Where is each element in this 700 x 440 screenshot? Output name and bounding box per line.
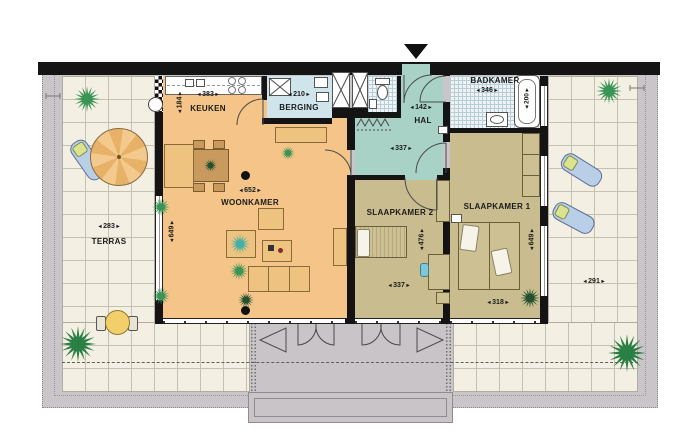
cooktop-burner-2 bbox=[238, 77, 246, 85]
dim-keuken-width: 383 bbox=[178, 91, 238, 98]
plant-terrace-right bbox=[596, 78, 622, 104]
kitchen-sink-left bbox=[185, 79, 194, 87]
wall-below-shafts bbox=[332, 108, 368, 118]
label-berging: BERGING bbox=[267, 103, 331, 112]
sofa bbox=[248, 266, 310, 292]
sideboard bbox=[275, 127, 327, 143]
wall-toilet-hal bbox=[368, 112, 401, 118]
window-right-badkamer bbox=[540, 86, 548, 126]
floorplan: KEUKEN BERGING HAL BADKAMER WOONKAMER SL… bbox=[0, 0, 700, 440]
terrace-round-table bbox=[105, 310, 130, 335]
dining-chair-1 bbox=[193, 140, 205, 149]
coffee-table-item-2 bbox=[278, 248, 283, 253]
wardrobe-shelf-1 bbox=[523, 154, 539, 155]
dining-chair-4 bbox=[213, 183, 225, 192]
wardrobe-shelf-2 bbox=[523, 175, 539, 176]
kitchen-sink-right bbox=[196, 79, 205, 87]
plant-woonkamer-4 bbox=[230, 262, 248, 280]
plant-terrace-left bbox=[74, 86, 100, 112]
balcony-step bbox=[248, 392, 453, 423]
glass-facade-slaapkamer2 bbox=[355, 318, 441, 324]
tv-cabinet-left bbox=[164, 144, 194, 188]
dim-woonkamer-depth: 649 bbox=[169, 212, 176, 252]
facade-corner-4 bbox=[540, 318, 548, 324]
gallery-edge-left bbox=[250, 322, 258, 392]
dim-slaapkamer2-width: 337 bbox=[375, 282, 423, 289]
plant-slaapkamer1 bbox=[520, 288, 540, 308]
wall-berging-woonkamer bbox=[262, 118, 332, 124]
facade-corner-2 bbox=[345, 318, 355, 324]
entrance-marker-icon bbox=[404, 44, 428, 59]
label-keuken: KEUKEN bbox=[178, 104, 238, 113]
label-slaapkamer1: SLAAPKAMER 1 bbox=[454, 202, 540, 211]
person-icon bbox=[230, 234, 250, 254]
room-hal-upper bbox=[397, 76, 443, 180]
shaft-box-2 bbox=[352, 72, 368, 108]
meter-box bbox=[438, 126, 448, 134]
dining-chair-3 bbox=[193, 183, 205, 192]
coffee-table-item-1 bbox=[268, 245, 274, 251]
dim-bathtub-length: 200 bbox=[524, 79, 531, 119]
sofa-seam-1 bbox=[268, 267, 269, 291]
window-right-slaapkamer1a bbox=[540, 156, 548, 206]
dim-hal-lower-width: 337 bbox=[378, 145, 424, 152]
label-hal: HAL bbox=[404, 116, 442, 125]
facade-corner-1 bbox=[155, 318, 163, 324]
dim-slaapkamer1-depth: 649 bbox=[529, 220, 536, 260]
bathroom-sink-bowl bbox=[490, 115, 504, 124]
wall-right-3 bbox=[540, 206, 548, 226]
glass-facade-slaapkamer1 bbox=[450, 318, 540, 324]
facade-corner-3 bbox=[441, 318, 450, 324]
toilet-tank-icon bbox=[375, 78, 390, 85]
label-slaapkamer2: SLAAPKAMER 2 bbox=[357, 208, 443, 217]
dim-slaapkamer2-depth: 476 bbox=[419, 220, 426, 260]
plant-woonkamer-3 bbox=[281, 146, 295, 160]
wall-hal-badkamer-mid bbox=[443, 102, 450, 142]
dim-hal-width: 142 bbox=[398, 104, 444, 111]
label-woonkamer: WOONKAMER bbox=[202, 198, 298, 207]
dim-keuken-depth: 184 bbox=[177, 83, 184, 123]
dim-terras-left: 283 bbox=[85, 223, 133, 230]
window-right-slaapkamer1b bbox=[540, 226, 548, 296]
desk-chair bbox=[420, 263, 429, 277]
double-bed-split bbox=[489, 223, 490, 289]
gallery-edge-right bbox=[445, 322, 453, 392]
dim-slaapkamer1-width: 318 bbox=[474, 299, 522, 306]
cooktop-burner-4 bbox=[238, 86, 246, 94]
wall-hal-slaapkamer2-left bbox=[347, 175, 405, 180]
armchair-1 bbox=[258, 208, 284, 230]
wall-left-upper bbox=[155, 112, 163, 196]
wall-right-1 bbox=[540, 76, 548, 86]
wardrobe-slaapkamer1 bbox=[522, 133, 540, 197]
toilet-basin-icon bbox=[369, 99, 377, 109]
bush-bottom-right bbox=[608, 334, 646, 372]
cooktop-burner-1 bbox=[228, 77, 236, 85]
plant-woonkamer-2 bbox=[152, 287, 170, 305]
berging-sink-icon bbox=[314, 77, 328, 88]
glass-facade-woonkamer bbox=[163, 318, 345, 324]
desk-slaapkamer2 bbox=[428, 254, 450, 290]
dining-chair-2 bbox=[213, 140, 225, 149]
table-plant-icon bbox=[204, 159, 217, 172]
plant-woonkamer-1 bbox=[152, 198, 170, 216]
boiler-icon bbox=[148, 97, 163, 112]
sofa-seam-2 bbox=[289, 267, 290, 291]
dim-badkamer-width: 346 bbox=[452, 87, 522, 94]
desk-right-wall bbox=[333, 228, 347, 266]
terrace-dashed-line bbox=[62, 362, 638, 363]
shelf-slaapkamer2 bbox=[436, 292, 450, 304]
balcony-gallery bbox=[250, 318, 453, 392]
label-terras: TERRAS bbox=[84, 237, 134, 246]
toilet-bowl-icon bbox=[377, 85, 388, 100]
column-1 bbox=[241, 171, 250, 180]
wall-right-4 bbox=[540, 296, 548, 318]
double-bed-pillow-1 bbox=[459, 224, 479, 252]
entrance-doorway bbox=[402, 64, 430, 76]
dim-berging-width: 210 bbox=[267, 91, 331, 98]
coffee-table bbox=[262, 240, 292, 262]
parasol bbox=[90, 128, 148, 186]
wall-woonkamer-hal-upper bbox=[347, 118, 355, 150]
single-bed-pillow bbox=[357, 229, 370, 257]
plant-woonkamer-5 bbox=[238, 292, 254, 308]
bush-bottom-left bbox=[60, 326, 96, 362]
dim-woonkamer-width: 652 bbox=[225, 187, 275, 194]
shaft-box-1 bbox=[332, 72, 350, 108]
wall-hal-badkamer-top bbox=[443, 62, 450, 76]
dim-terras-right: 291 bbox=[570, 278, 618, 285]
wall-woonkamer-slaapkamer2 bbox=[347, 176, 355, 318]
wall-right-2 bbox=[540, 126, 548, 156]
